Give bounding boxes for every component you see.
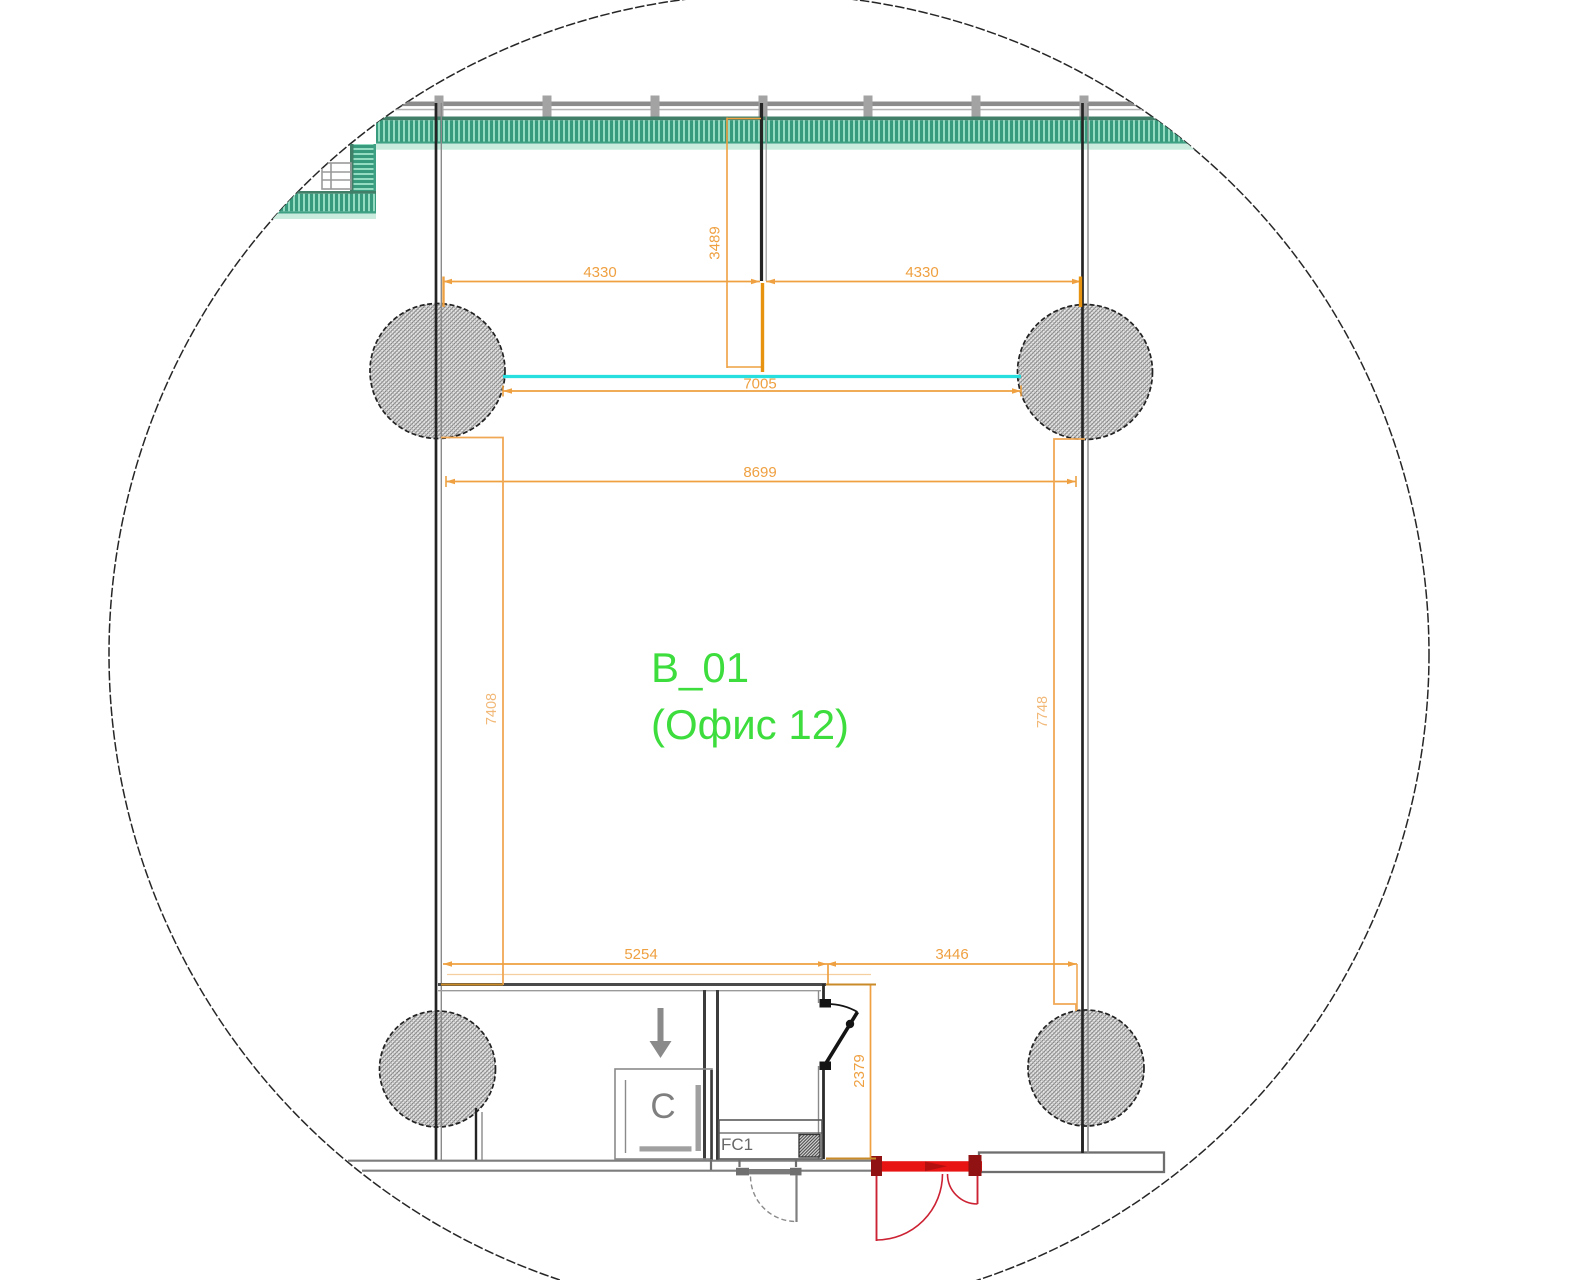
svg-text:7748: 7748 bbox=[1035, 696, 1051, 728]
svg-text:8699: 8699 bbox=[743, 464, 776, 481]
svg-text:C: C bbox=[650, 1087, 675, 1126]
svg-text:7408: 7408 bbox=[484, 693, 500, 725]
svg-text:5254: 5254 bbox=[624, 946, 657, 963]
svg-text:4330: 4330 bbox=[583, 264, 616, 281]
svg-text:3446: 3446 bbox=[935, 946, 968, 963]
svg-text:2379: 2379 bbox=[851, 1054, 868, 1087]
svg-text:3489: 3489 bbox=[707, 226, 724, 259]
svg-text:FC1: FC1 bbox=[721, 1135, 753, 1154]
svg-text:(Офис 12): (Офис 12) bbox=[651, 701, 849, 748]
svg-text:7005: 7005 bbox=[743, 376, 776, 393]
svg-text:B_01: B_01 bbox=[651, 644, 749, 691]
svg-text:4330: 4330 bbox=[905, 264, 938, 281]
